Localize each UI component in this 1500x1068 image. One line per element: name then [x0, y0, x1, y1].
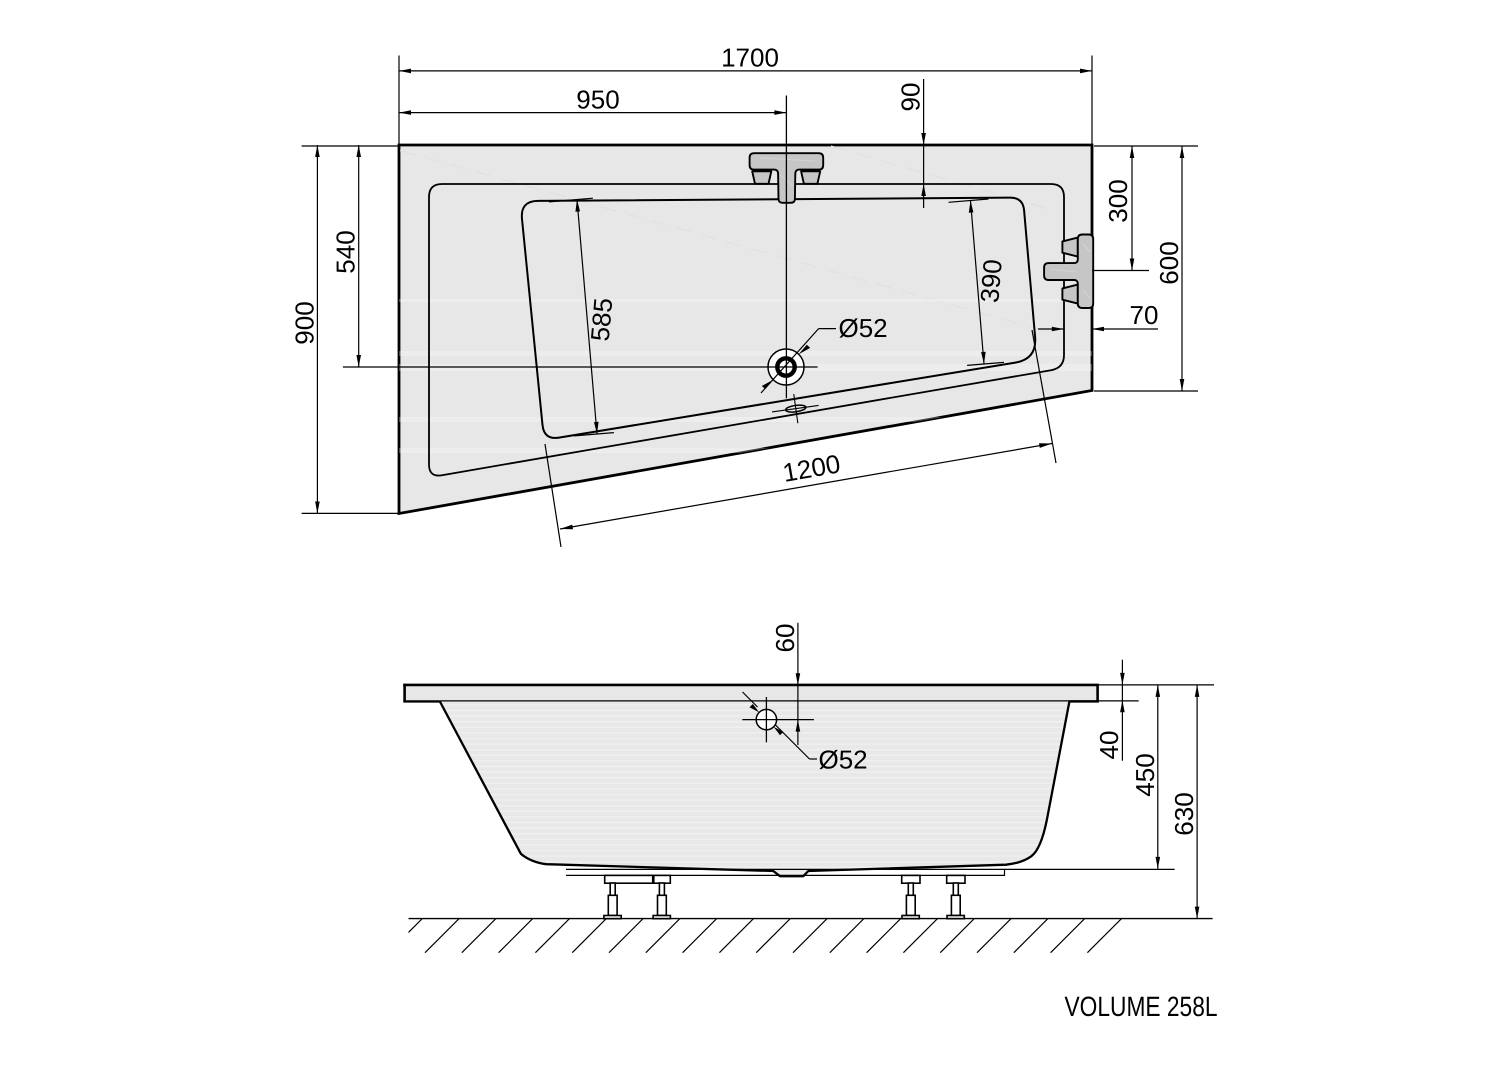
svg-text:600: 600 — [1154, 241, 1184, 284]
svg-text:950: 950 — [576, 84, 619, 114]
svg-text:90: 90 — [896, 83, 926, 112]
svg-text:1700: 1700 — [721, 43, 779, 73]
svg-text:Ø52: Ø52 — [839, 313, 888, 343]
svg-text:585: 585 — [585, 297, 619, 343]
svg-text:540: 540 — [331, 230, 361, 273]
svg-text:70: 70 — [1130, 300, 1159, 330]
svg-text:Ø52: Ø52 — [819, 745, 868, 775]
svg-text:300: 300 — [1103, 179, 1133, 222]
svg-text:40: 40 — [1094, 731, 1124, 760]
svg-text:60: 60 — [770, 624, 800, 653]
svg-text:VOLUME 258L: VOLUME 258L — [1065, 991, 1218, 1022]
svg-text:630: 630 — [1169, 792, 1199, 835]
svg-text:900: 900 — [289, 301, 319, 344]
svg-text:450: 450 — [1130, 753, 1160, 796]
svg-text:390: 390 — [974, 258, 1007, 304]
